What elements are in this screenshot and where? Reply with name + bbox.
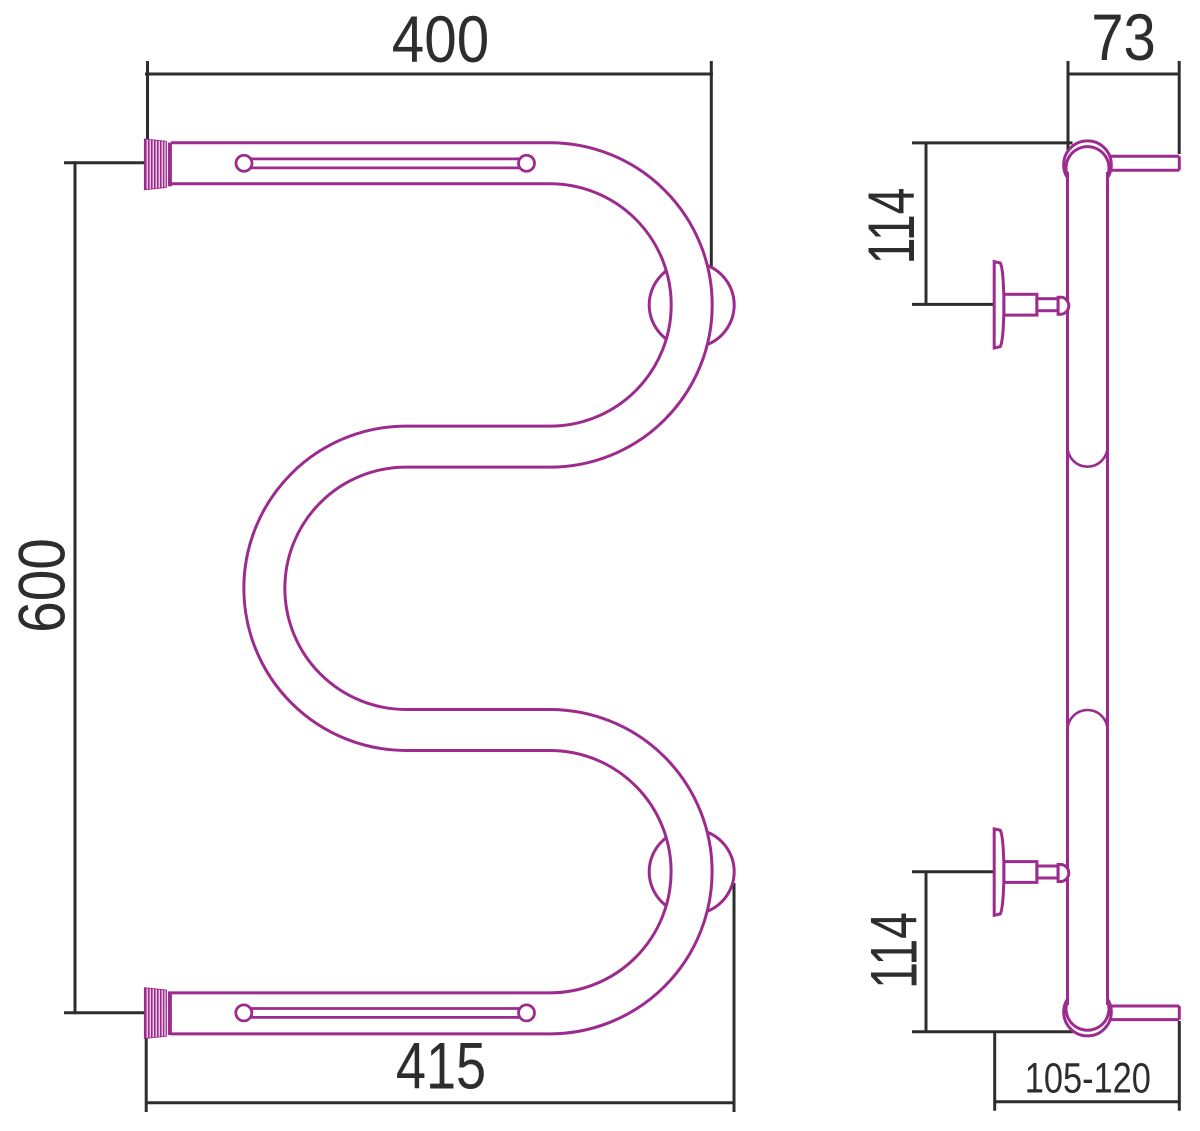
svg-text:73: 73 xyxy=(1091,2,1156,75)
svg-text:105-120: 105-120 xyxy=(1025,1055,1151,1102)
svg-text:415: 415 xyxy=(396,1028,486,1102)
svg-text:400: 400 xyxy=(392,4,489,77)
svg-text:114: 114 xyxy=(858,912,931,989)
svg-text:600: 600 xyxy=(6,538,80,633)
svg-text:114: 114 xyxy=(856,188,929,265)
